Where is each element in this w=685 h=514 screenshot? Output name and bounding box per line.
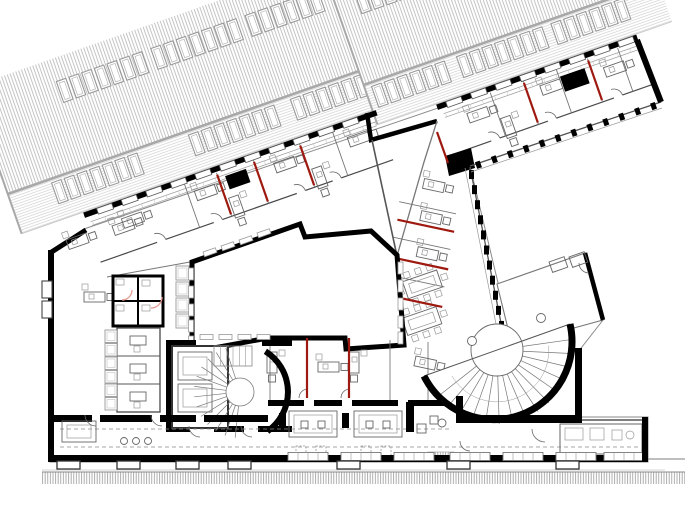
courtyard-window (189, 320, 194, 332)
floor-plan-canvas (0, 0, 685, 514)
courtyard-window (238, 335, 251, 340)
column (406, 402, 414, 432)
facade-pier (478, 215, 483, 224)
window-module (341, 453, 381, 461)
window-box (105, 344, 117, 357)
east-wall (642, 417, 648, 462)
window-box (105, 330, 117, 343)
bay-window (42, 301, 52, 318)
facade-pier (493, 291, 498, 300)
facade-pier (481, 230, 486, 239)
courtyard-window (398, 332, 403, 344)
window-box (176, 298, 189, 312)
window-module (604, 453, 644, 461)
bay-window (117, 461, 140, 469)
courtyard-window (189, 286, 194, 298)
wall (352, 400, 398, 406)
stair-frame-wall (575, 348, 582, 421)
courtyard-window (189, 304, 194, 316)
facade-pier (475, 200, 480, 209)
stair-frame-wall (456, 415, 582, 423)
window-module (288, 453, 328, 461)
window-module (394, 453, 434, 461)
courtyard-window (398, 298, 403, 310)
window-box (176, 266, 189, 280)
floor-plan-drawing (0, 0, 685, 514)
window-module (450, 453, 490, 461)
courtyard-window (398, 280, 403, 292)
window-box (105, 371, 117, 384)
facade-pier (496, 306, 501, 315)
window-box (105, 357, 117, 370)
facade-pier (484, 246, 489, 255)
stair-frame-wall (456, 396, 463, 423)
courtyard-window (189, 268, 194, 280)
facade-pier (490, 276, 495, 285)
facade-pier (487, 261, 492, 270)
wall (100, 415, 152, 422)
courtyard-window (398, 316, 403, 328)
wall (314, 400, 342, 406)
bay-window (42, 281, 52, 298)
courtyard-window (398, 262, 403, 274)
courtyard-window (257, 335, 270, 340)
wall (204, 415, 268, 422)
bay-window (447, 461, 470, 469)
bay-window (176, 461, 199, 469)
column (279, 413, 286, 428)
column (342, 413, 349, 428)
wall (160, 415, 196, 422)
window-box (176, 282, 189, 296)
bay-window (337, 461, 360, 469)
window-module (503, 453, 543, 461)
bay-window (556, 461, 579, 469)
window-box (105, 398, 117, 411)
courtyard-window (219, 335, 232, 340)
bay-window (228, 461, 251, 469)
window-box (176, 314, 189, 328)
bay-window (57, 461, 80, 469)
window-box (105, 384, 117, 397)
courtyard-window (200, 335, 213, 340)
wc-block (113, 276, 163, 326)
wall (262, 340, 292, 346)
window-module (556, 453, 596, 461)
facade-pier (472, 185, 477, 194)
